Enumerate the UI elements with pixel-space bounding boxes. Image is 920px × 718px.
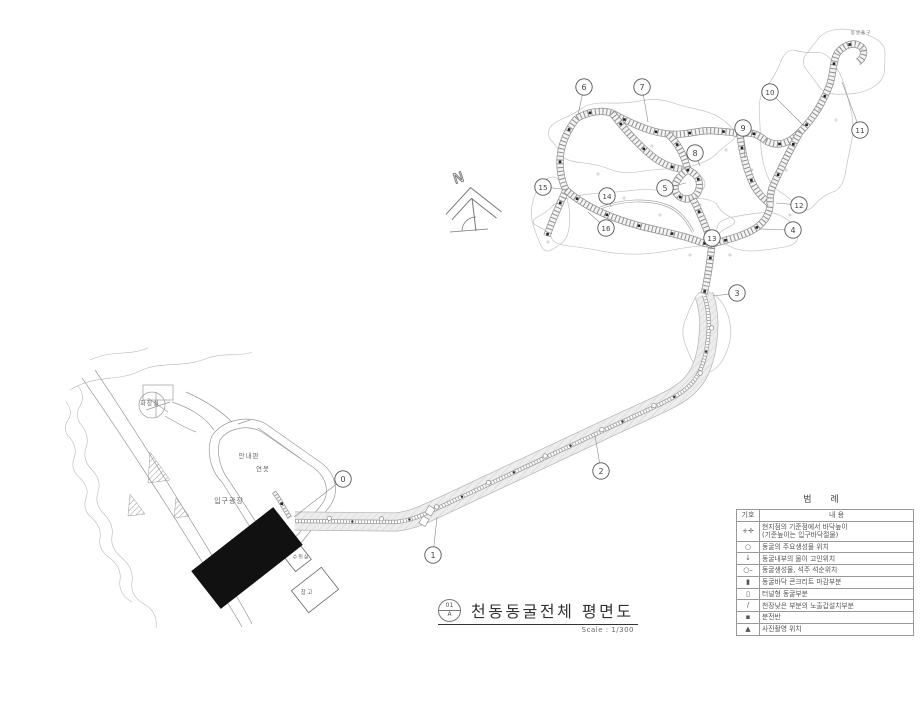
- legend-row: ▲사진촬영 위치: [737, 623, 914, 635]
- station-peg: [638, 224, 641, 227]
- station-peg: [848, 43, 851, 46]
- station-number: 10: [765, 88, 775, 97]
- station-leader: [713, 294, 729, 296]
- elevation-mark: [622, 196, 626, 200]
- legend-row: /천장낮은 부분의 노출갑설치부분: [737, 600, 914, 612]
- formation-dot: [709, 326, 713, 330]
- station-number: 0: [340, 475, 345, 484]
- station-peg: [576, 197, 579, 200]
- station-leader: [776, 203, 791, 204]
- legend-title: 범 례: [736, 492, 914, 505]
- station-peg: [697, 178, 700, 181]
- legend-symbol: ▯: [737, 588, 760, 600]
- station-number: 11: [855, 126, 864, 135]
- elevation-mark: [546, 240, 550, 244]
- legend-desc: 동굴바닥 콘크리트 마감부분: [760, 576, 914, 588]
- station-number: 3: [734, 289, 739, 298]
- warehouse: [291, 567, 338, 612]
- legend-desc: 터널형 동굴부분: [760, 588, 914, 600]
- legend-row: +✛현지점의 기준점에서 바닥높이(기준높이는 입구바닥절물): [737, 521, 914, 541]
- station-number: 4: [790, 226, 795, 235]
- site-label: 입구광장: [214, 496, 244, 506]
- survey-dot: [569, 445, 571, 447]
- legend-desc: 동굴내부의 물이 고인위치: [760, 553, 914, 565]
- station-markers: 012345678910111213141516: [294, 79, 868, 563]
- station-number: 12: [794, 201, 803, 210]
- sheet-number: 01: [439, 603, 460, 611]
- station-peg: [703, 290, 706, 293]
- station-number: 14: [602, 192, 612, 201]
- site-label: 동굴출구: [851, 30, 872, 36]
- legend-col-desc: 내 용: [760, 510, 914, 522]
- legend-row: ↓동굴내부의 물이 고인위치: [737, 553, 914, 565]
- legend-panel: 범 례 기호 내 용 +✛현지점의 기준점에서 바닥높이(기준높이는 입구바닥절…: [736, 492, 914, 636]
- legend-symbol: ▲: [737, 623, 760, 635]
- station-peg: [619, 123, 622, 126]
- elevation-mark: [596, 172, 600, 176]
- formation-dot: [434, 505, 438, 509]
- station-peg: [676, 143, 679, 146]
- survey-dot: [408, 518, 410, 520]
- station-leader: [842, 82, 857, 122]
- drawing-title: 천동동굴전체 평면도: [471, 598, 634, 622]
- station-peg: [671, 232, 674, 235]
- cave-wall-outline: [548, 99, 735, 172]
- site-label: 연못: [256, 463, 270, 473]
- legend-col-symbol: 기호: [737, 510, 760, 522]
- sheet-revision: A: [439, 611, 460, 618]
- legend-symbol: ▪: [737, 612, 760, 624]
- legend-desc: 분전반: [760, 612, 914, 624]
- site-label: 수위실: [293, 554, 310, 561]
- legend-desc: 천장낮은 부분의 노출갑설치부분: [760, 600, 914, 612]
- elevation-mark: [728, 253, 732, 257]
- terrain-linework: [65, 348, 338, 628]
- station-leader: [776, 98, 804, 126]
- drawing-canvas: N 012345678910111213141516 화장실안내판연못입구광장수…: [0, 0, 920, 718]
- station-number: 16: [601, 224, 611, 233]
- north-letter: N: [451, 169, 466, 187]
- station-number: 15: [538, 183, 547, 192]
- station-peg: [756, 226, 759, 229]
- station-peg: [752, 132, 755, 135]
- formation-dot: [652, 403, 656, 407]
- legend-row: ▪분전반: [737, 612, 914, 624]
- survey-dot: [673, 396, 675, 398]
- survey-dot: [705, 350, 707, 352]
- station-peg: [546, 233, 549, 236]
- legend-row: ▯터널형 동굴부분: [737, 588, 914, 600]
- station-number: 13: [707, 234, 716, 243]
- station-peg: [777, 173, 780, 176]
- station-peg: [724, 239, 727, 242]
- station-leader: [643, 95, 648, 122]
- station-peg: [655, 131, 658, 134]
- station-peg: [589, 112, 592, 115]
- legend-desc: 동굴의 주요생성물 위치: [760, 541, 914, 553]
- formation-dot: [698, 371, 702, 375]
- drawing-scale: Scale : 1/300: [438, 626, 638, 634]
- station-leader: [434, 517, 437, 547]
- survey-dot: [461, 496, 463, 498]
- north-arrow: N: [449, 169, 499, 232]
- legend-symbol: /: [737, 600, 760, 612]
- station-peg: [643, 148, 646, 151]
- formation-dot: [379, 517, 383, 521]
- sheet-number-bubble: 01 A: [438, 599, 461, 622]
- site-label: 창고: [300, 588, 313, 597]
- legend-table: 기호 내 용 +✛현지점의 기준점에서 바닥높이(기준높이는 입구바닥절물)○동…: [736, 509, 914, 636]
- site-label: 화장실: [140, 399, 160, 408]
- station-peg: [679, 196, 682, 199]
- elevation-mark: [650, 144, 654, 148]
- survey-dot: [513, 471, 515, 473]
- walkway-segment: [547, 190, 566, 236]
- legend-row: ▮동굴바닥 콘크리트 마감부분: [737, 576, 914, 588]
- site-label: 안내판: [239, 450, 260, 460]
- title-underline: [438, 624, 638, 625]
- station-peg: [623, 118, 626, 121]
- station-peg: [722, 130, 725, 133]
- station-peg: [559, 201, 562, 204]
- formation-dot: [543, 454, 547, 458]
- station-number: 8: [692, 149, 697, 158]
- station-peg: [750, 179, 753, 182]
- station-number: 7: [639, 83, 644, 92]
- elevation-mark: [834, 118, 838, 122]
- elevation-mark: [688, 253, 692, 257]
- legend-symbol: ↓: [737, 553, 760, 565]
- walkway-segment: [577, 111, 612, 118]
- elevation-mark: [724, 148, 728, 152]
- station-leader: [759, 229, 785, 230]
- station-number: 2: [598, 467, 603, 476]
- walkway-segment: [766, 52, 838, 144]
- station-peg: [280, 502, 283, 505]
- station-peg: [805, 123, 808, 126]
- station-number: 9: [740, 124, 745, 133]
- formation-dot: [486, 480, 490, 484]
- station-peg: [688, 132, 691, 135]
- station-peg: [671, 166, 674, 169]
- station-peg: [606, 213, 609, 216]
- station-peg: [698, 210, 701, 213]
- legend-desc: 동굴생성물, 석주 석순위치: [760, 565, 914, 577]
- station-peg: [792, 143, 795, 146]
- legend-row: ○–동굴생성물, 석주 석순위치: [737, 565, 914, 577]
- station-peg: [778, 143, 781, 146]
- legend-symbol: +✛: [737, 521, 760, 541]
- station-number: 5: [662, 184, 667, 193]
- legend-desc: 현지점의 기준점에서 바닥높이(기준높이는 입구바닥절물): [760, 521, 914, 541]
- station-number: 1: [430, 551, 435, 560]
- walkway-segment: [838, 44, 864, 62]
- formation-dot: [600, 427, 604, 431]
- walkway-segment: [704, 244, 712, 294]
- station-peg: [687, 169, 690, 172]
- main-gallery: [295, 295, 709, 522]
- legend-symbol: ○–: [737, 565, 760, 577]
- survey-dot: [621, 420, 623, 422]
- legend-symbol: ○: [737, 541, 760, 553]
- legend-desc: 사진촬영 위치: [760, 623, 914, 635]
- formation-dot: [327, 516, 331, 520]
- elevation-mark: [788, 213, 792, 217]
- station-peg: [833, 62, 836, 65]
- station-leader: [551, 188, 562, 189]
- station-peg: [559, 161, 562, 164]
- legend-row: ○동굴의 주요생성물 위치: [737, 541, 914, 553]
- station-peg: [741, 147, 744, 150]
- survey-dot: [351, 520, 353, 522]
- station-peg: [823, 95, 826, 98]
- title-block: 01 A 천동동굴전체 평면도 Scale : 1/300: [438, 598, 638, 634]
- station-peg: [568, 128, 571, 131]
- legend-symbol: ▮: [737, 576, 760, 588]
- elevation-mark: [658, 213, 662, 217]
- station-number: 6: [581, 83, 586, 92]
- station-peg: [709, 257, 712, 260]
